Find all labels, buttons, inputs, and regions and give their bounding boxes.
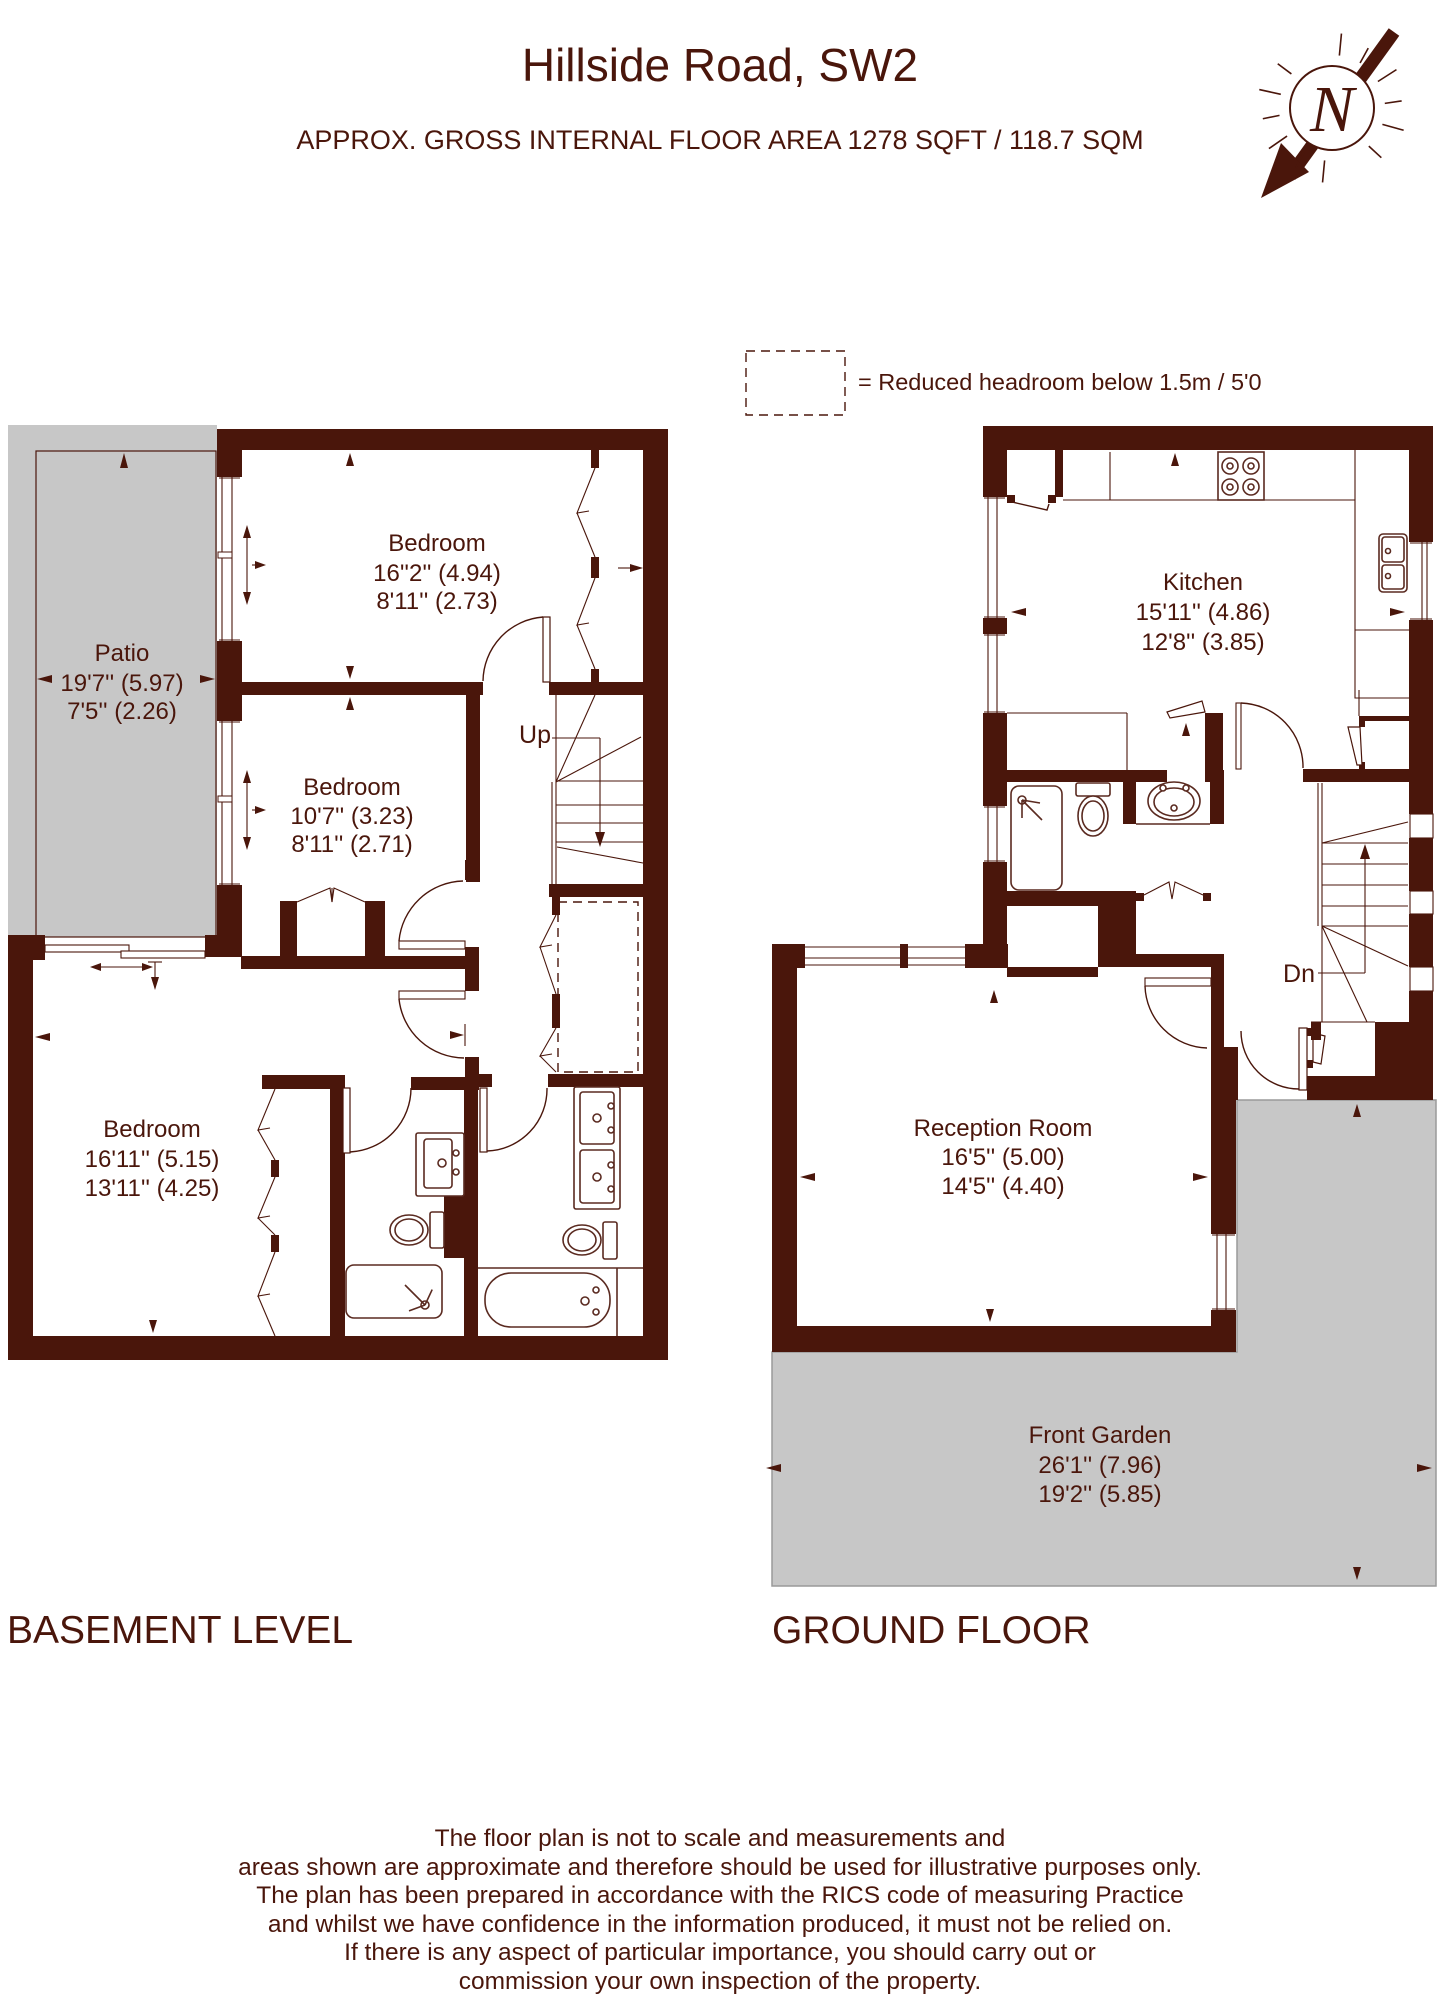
- svg-text:Front Garden: Front Garden: [1029, 1422, 1172, 1449]
- svg-text:If there is any aspect of part: If there is any aspect of particular imp…: [344, 1939, 1096, 1966]
- svg-text:Bedroom: Bedroom: [388, 530, 485, 557]
- svg-text:8'11'' (2.73): 8'11'' (2.73): [376, 588, 497, 615]
- svg-text:16'5'' (5.00): 16'5'' (5.00): [941, 1144, 1064, 1171]
- svg-text:10'7'' (3.23): 10'7'' (3.23): [290, 803, 413, 830]
- svg-text:areas shown are approximate an: areas shown are approximate and therefor…: [238, 1854, 1202, 1881]
- svg-text:The floor plan is not to scale: The floor plan is not to scale and measu…: [435, 1825, 1006, 1852]
- svg-text:Bedroom: Bedroom: [103, 1116, 200, 1143]
- svg-text:7'5'' (2.26): 7'5'' (2.26): [67, 698, 177, 725]
- svg-text:13'11'' (4.25): 13'11'' (4.25): [85, 1175, 220, 1202]
- svg-text:Kitchen: Kitchen: [1163, 569, 1243, 596]
- svg-text:19'2'' (5.85): 19'2'' (5.85): [1038, 1481, 1161, 1508]
- svg-text:Dn: Dn: [1283, 960, 1315, 988]
- svg-text:The plan has been prepared in: The plan has been prepared in accordance…: [256, 1882, 1183, 1909]
- svg-text:N: N: [1309, 73, 1358, 146]
- svg-text:commission your own inspection: commission your own inspection of the pr…: [459, 1968, 981, 1995]
- svg-text:19'7'' (5.97): 19'7'' (5.97): [60, 670, 183, 697]
- svg-text:Up: Up: [519, 721, 551, 749]
- svg-text:and whilst we have confidence: and whilst we have confidence in the inf…: [268, 1911, 1172, 1938]
- svg-text:15'11'' (4.86): 15'11'' (4.86): [1136, 599, 1271, 626]
- svg-text:APPROX. GROSS INTERNAL FLOOR A: APPROX. GROSS INTERNAL FLOOR AREA 1278 S…: [296, 125, 1143, 155]
- svg-text:14'5'' (4.40): 14'5'' (4.40): [941, 1173, 1064, 1200]
- svg-text:12'8'' (3.85): 12'8'' (3.85): [1141, 629, 1264, 656]
- svg-text:26'1'' (7.96): 26'1'' (7.96): [1038, 1452, 1161, 1479]
- svg-text:8'11'' (2.71): 8'11'' (2.71): [291, 831, 412, 858]
- svg-text:Patio: Patio: [95, 640, 150, 667]
- svg-text:GROUND FLOOR: GROUND FLOOR: [772, 1609, 1091, 1652]
- svg-text:Hillside Road, SW2: Hillside Road, SW2: [522, 39, 918, 91]
- svg-text:Bedroom: Bedroom: [303, 774, 400, 801]
- svg-text:16''2'' (4.94): 16''2'' (4.94): [373, 560, 501, 587]
- svg-text:BASEMENT LEVEL: BASEMENT LEVEL: [7, 1609, 353, 1652]
- svg-text:Reception Room: Reception Room: [914, 1115, 1093, 1142]
- svg-text:16'11'' (5.15): 16'11'' (5.15): [85, 1146, 220, 1173]
- svg-text:= Reduced headroom below 1.5m: = Reduced headroom below 1.5m / 5'0: [858, 369, 1262, 395]
